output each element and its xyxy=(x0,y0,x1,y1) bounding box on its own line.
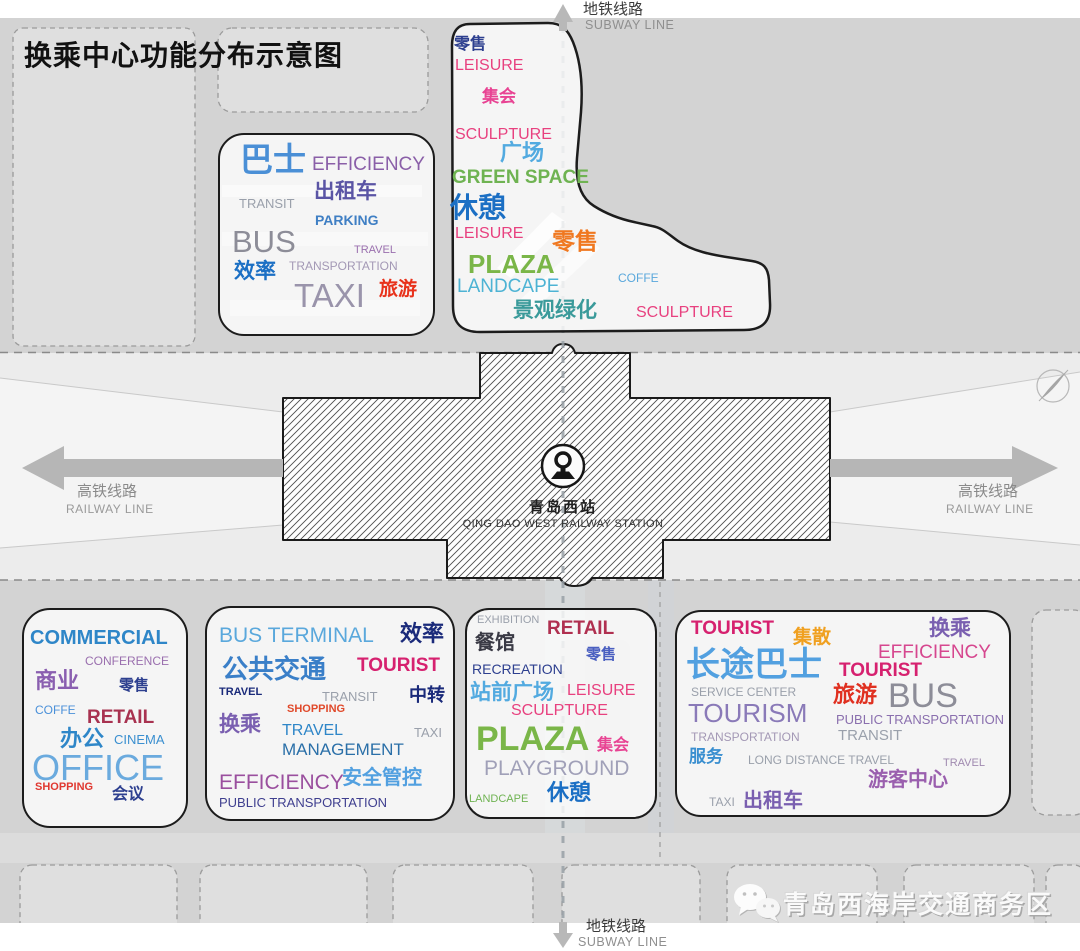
cloud-word: 长途巴士 xyxy=(686,648,822,682)
cloud-word: 出租车 xyxy=(314,181,377,202)
cloud-word: COMMERCIAL xyxy=(30,628,168,648)
cloud-word: LANDCAPE xyxy=(469,794,528,805)
cloud-word: BUS xyxy=(888,679,958,713)
cloud-word: 餐馆 xyxy=(475,633,515,653)
cloud-word: 效率 xyxy=(400,623,444,645)
cloud-word: PLAYGROUND xyxy=(484,758,629,779)
cloud-word: TRANSIT xyxy=(239,197,295,210)
cloud-word: TOURIST xyxy=(357,656,440,675)
cloud-word: SCULPTURE xyxy=(511,703,608,719)
cloud-word: 效率 xyxy=(234,261,276,282)
cloud-word: RECREATION xyxy=(472,662,563,676)
subway-line-label-bottom-en: SUBWAY LINE xyxy=(578,936,667,949)
cloud-word: 巴士 xyxy=(240,143,306,176)
cloud-word: 零售 xyxy=(454,37,486,53)
page-title: 换乘中心功能分布示意图 xyxy=(24,34,343,74)
cloud-word: TRANSIT xyxy=(838,728,902,743)
cloud-word: COFFE xyxy=(35,704,76,716)
cloud-word: GREEN SPACE xyxy=(452,168,589,187)
cloud-word: 换乘 xyxy=(219,714,261,735)
cloud-word: 出租车 xyxy=(743,791,803,811)
cloud-word: 游客中心 xyxy=(868,770,948,790)
cloud-word: TAXI xyxy=(709,796,735,808)
wechat-icon xyxy=(731,882,783,924)
subway-line-label-bottom-cn: 地铁线路 xyxy=(586,919,646,934)
cloud-word: TRAVEL xyxy=(282,723,343,739)
cloud-word: TRANSPORTATION xyxy=(289,260,398,272)
cloud-word: 商业 xyxy=(35,670,79,692)
cloud-word: 旅游 xyxy=(379,280,417,299)
cloud-word: 旅游 xyxy=(833,684,877,706)
cloud-bus-terminal: BUS TERMINAL效率公共交通TOURISTTRAVELTRANSIT中转… xyxy=(205,606,455,821)
railway-logo-icon xyxy=(542,445,584,487)
cloud-transit-west: 巴士EFFICIENCY出租车TRANSITPARKINGBUSTRAVEL效率… xyxy=(218,133,435,336)
cloud-word: 会议 xyxy=(112,787,144,803)
cloud-word: 零售 xyxy=(119,678,149,693)
cloud-word: 安全管控 xyxy=(342,768,422,788)
railway-line-label-right-cn: 高铁线路 xyxy=(958,484,1018,499)
railway-line-label-left-en: RAILWAY LINE xyxy=(66,503,154,515)
cloud-word: RETAIL xyxy=(87,708,154,727)
cloud-word: 景观绿化 xyxy=(513,300,597,321)
cloud-word: LONG DISTANCE TRAVEL xyxy=(748,754,894,766)
cloud-word: TOURISM xyxy=(688,700,807,726)
cloud-word: SCULPTURE xyxy=(636,305,733,321)
cloud-long-distance-bus: TOURIST集散换乘EFFICIENCY长途巴士TOURISTSERVICE … xyxy=(675,610,1011,817)
cloud-word: TOURIST xyxy=(691,619,774,638)
subway-line-label-top-cn: 地铁线路 xyxy=(583,2,643,17)
cloud-word: LEISURE xyxy=(455,226,523,242)
watermark-text: 青岛西海岸交通商务区 xyxy=(783,885,1053,921)
cloud-word: BUS xyxy=(232,226,296,257)
cloud-word: 休憩 xyxy=(547,782,591,804)
cloud-word: LANDCAPE xyxy=(457,277,559,296)
cloud-word: LEISURE xyxy=(455,58,523,74)
cloud-word: TRAVEL xyxy=(354,245,396,256)
cloud-word: EFFICIENCY xyxy=(219,772,344,793)
cloud-word: CINEMA xyxy=(114,733,165,746)
cloud-word: 站前广场 xyxy=(470,682,554,703)
cloud-word: LEISURE xyxy=(567,683,635,699)
cloud-word: TRANSPORTATION xyxy=(691,731,800,743)
cloud-word: PARKING xyxy=(315,213,379,227)
cloud-word: 公共交通 xyxy=(222,656,326,682)
cloud-word: PLAZA xyxy=(476,722,589,756)
cloud-commercial: COMMERCIALCONFERENCE商业零售COFFERETAIL办公CIN… xyxy=(22,608,188,828)
cloud-word: 服务 xyxy=(689,748,723,765)
cloud-word: 休憩 xyxy=(450,194,506,222)
cloud-word: 换乘 xyxy=(929,618,971,639)
cloud-word: BUS TERMINAL xyxy=(219,625,374,646)
cloud-word: PUBLIC TRANSPORTATION xyxy=(836,713,1004,726)
cloud-station-plaza: EXHIBITIONRETAIL餐馆零售RECREATION站前广场LEISUR… xyxy=(465,608,657,819)
watermark: 青岛西海岸交通商务区 xyxy=(731,882,1053,924)
cloud-word: 零售 xyxy=(552,230,598,253)
cloud-word: 中转 xyxy=(409,686,445,704)
cloud-word: TRAVEL xyxy=(943,758,985,769)
cloud-word: COFFE xyxy=(618,272,659,284)
cloud-word: TAXI xyxy=(414,726,442,739)
station-name-en: QING DAO WEST RAILWAY STATION xyxy=(463,519,664,530)
cloud-word: TRAVEL xyxy=(219,687,262,698)
cloud-word: SHOPPING xyxy=(287,704,345,715)
cloud-word: RETAIL xyxy=(547,619,614,638)
cloud-word: TRANSIT xyxy=(322,690,378,703)
station-name-cn: 青岛西站 xyxy=(529,500,597,515)
railway-line-label-left-cn: 高铁线路 xyxy=(77,484,137,499)
cloud-word: 集会 xyxy=(482,88,516,105)
cloud-word: MANAGEMENT xyxy=(282,741,404,758)
cloud-word: SERVICE CENTER xyxy=(691,686,796,698)
cloud-word: SHOPPING xyxy=(35,782,93,793)
cloud-word: 零售 xyxy=(586,647,616,662)
cloud-word: 集会 xyxy=(597,738,629,754)
cloud-word: EFFICIENCY xyxy=(312,155,425,174)
cloud-word: 集散 xyxy=(793,628,831,647)
cloud-word: EXHIBITION xyxy=(477,615,539,626)
cloud-word: PUBLIC TRANSPORTATION xyxy=(219,796,387,809)
cloud-word: CONFERENCE xyxy=(85,655,169,667)
cloud-word: PLAZA xyxy=(468,251,555,277)
cloud-word: 广场 xyxy=(500,142,544,164)
diagram-canvas: 换乘中心功能分布示意图 地铁线路 SUBWAY LINE 地铁线路 SUBWAY… xyxy=(0,0,1080,951)
cloud-plaza-north: 零售LEISURE集会SCULPTURE广场GREEN SPACE休憩LEISU… xyxy=(450,20,772,336)
railway-line-label-right-en: RAILWAY LINE xyxy=(946,503,1034,515)
cloud-word: TAXI xyxy=(294,279,365,312)
